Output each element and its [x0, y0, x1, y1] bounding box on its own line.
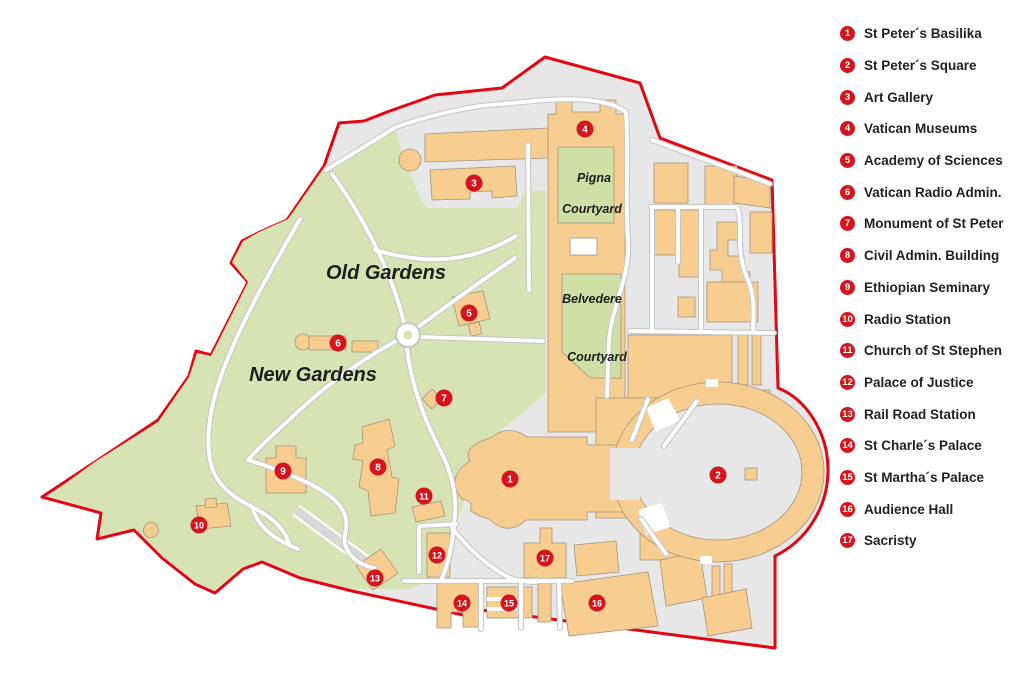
roundabout-center: [404, 331, 413, 340]
map-label: Old Gardens: [326, 262, 446, 284]
map-marker-number: 5: [466, 308, 472, 319]
legend-item: 7Monument of St Peter: [840, 208, 1024, 240]
legend-marker-badge: 7: [840, 216, 855, 231]
map-marker-number: 12: [432, 550, 442, 560]
cluster-building: [653, 210, 677, 255]
legend-item-label: St Peter´s Square: [864, 58, 977, 73]
legend-item-label: Vatican Radio Admin.: [864, 185, 1002, 200]
legend-item-label: Sacristy: [864, 533, 917, 548]
legend-item: 6Vatican Radio Admin.: [840, 176, 1024, 208]
legend-item: 8Civil Admin. Building: [840, 240, 1024, 272]
legend-marker-badge: 11: [840, 343, 855, 358]
legend-item: 11Church of St Stephen: [840, 335, 1024, 367]
cluster-building: [750, 212, 772, 253]
legend-item-label: St Charle´s Palace: [864, 438, 982, 453]
round-tower-building: [399, 149, 421, 171]
legend-item-label: Art Gallery: [864, 90, 933, 105]
legend-item: 10Radio Station: [840, 303, 1024, 335]
legend-marker-badge: 5: [840, 153, 855, 168]
map-label: Pigna: [577, 171, 611, 185]
legend-marker-badge: 3: [840, 90, 855, 105]
legend-marker-badge: 8: [840, 248, 855, 263]
map-marker-number: 7: [441, 393, 447, 404]
legend-item: 4Vatican Museums: [840, 113, 1024, 145]
cluster-building: [679, 210, 700, 277]
map-marker-number: 8: [375, 462, 381, 473]
legend-marker-badge: 6: [840, 185, 855, 200]
map-marker-number: 16: [592, 598, 602, 608]
map-marker-number: 11: [419, 491, 429, 501]
legend-panel: 1St Peter´s Basilika2St Peter´s Square3A…: [840, 18, 1024, 557]
legend-marker-badge: 15: [840, 470, 855, 485]
map-marker-number: 3: [471, 178, 477, 189]
legend-item-label: Rail Road Station: [864, 407, 976, 422]
cluster-building: [738, 335, 748, 385]
legend-item-label: Radio Station: [864, 312, 951, 327]
legend-marker-badge: 1: [840, 26, 855, 41]
legend-item-label: St Martha´s Palace: [864, 470, 984, 485]
legend-item: 1St Peter´s Basilika: [840, 18, 1024, 50]
legend-item: 3Art Gallery: [840, 81, 1024, 113]
garden-tower-building: [144, 523, 159, 538]
colonnade-notch: [706, 379, 718, 387]
legend-item: 2St Peter´s Square: [840, 50, 1024, 82]
colonnade-notch: [700, 556, 712, 564]
radio-station-annex: [205, 498, 217, 508]
legend-item: 16Audience Hall: [840, 493, 1024, 525]
map-marker-number: 2: [715, 470, 721, 481]
legend-item-label: Civil Admin. Building: [864, 248, 999, 263]
vatican-city-map-page: Old GardensNew GardensPignaCourtyardBelv…: [0, 0, 1024, 689]
legend-item-label: Church of St Stephen: [864, 343, 1002, 358]
legend-item: 5Academy of Sciences: [840, 145, 1024, 177]
legend-marker-badge: 12: [840, 375, 855, 390]
plaza-corridor: [610, 448, 640, 500]
map-marker-number: 1: [507, 474, 513, 485]
map-label: Belvedere: [562, 292, 622, 306]
legend-item: 12Palace of Justice: [840, 367, 1024, 399]
cluster-building: [654, 163, 688, 203]
map-marker-number: 15: [504, 598, 514, 608]
legend-item: 14St Charle´s Palace: [840, 430, 1024, 462]
map-label: Courtyard: [562, 202, 622, 216]
legend-marker-badge: 10: [840, 312, 855, 327]
legend-item-label: Palace of Justice: [864, 375, 974, 390]
museum-inner-court: [570, 238, 597, 255]
legend-item-label: Ethiopian Seminary: [864, 280, 990, 295]
obelisk: [745, 468, 757, 480]
legend-marker-badge: 9: [840, 280, 855, 295]
legend-marker-badge: 17: [840, 533, 855, 548]
legend-item-label: St Peter´s Basilika: [864, 26, 982, 41]
legend-item-label: Academy of Sciences: [864, 153, 1003, 168]
map-marker-number: 14: [457, 598, 467, 608]
map-marker-number: 6: [335, 338, 341, 349]
map-marker-number: 9: [280, 466, 286, 477]
map-marker-number: 13: [370, 573, 380, 583]
map-marker-number: 4: [582, 124, 588, 135]
legend-marker-badge: 14: [840, 438, 855, 453]
cluster-building: [678, 297, 695, 317]
legend-item: 9Ethiopian Seminary: [840, 272, 1024, 304]
legend-item: 13Rail Road Station: [840, 398, 1024, 430]
legend-marker-badge: 16: [840, 502, 855, 517]
legend-marker-badge: 4: [840, 121, 855, 136]
map-marker-number: 10: [194, 520, 204, 530]
legend-marker-badge: 13: [840, 407, 855, 422]
legend-item: 15St Martha´s Palace: [840, 462, 1024, 494]
legend-item-label: Monument of St Peter: [864, 216, 1004, 231]
cluster-building: [752, 335, 761, 385]
building-near-sacristy: [574, 541, 619, 576]
legend-marker-badge: 2: [840, 58, 855, 73]
legend-item-label: Audience Hall: [864, 502, 953, 517]
legend-item: 17Sacristy: [840, 525, 1024, 557]
legend-item-label: Vatican Museums: [864, 121, 977, 136]
map-label: New Gardens: [249, 364, 377, 386]
map-marker-number: 17: [540, 553, 550, 563]
academy-wing: [468, 322, 482, 336]
map-label: Courtyard: [567, 350, 627, 364]
